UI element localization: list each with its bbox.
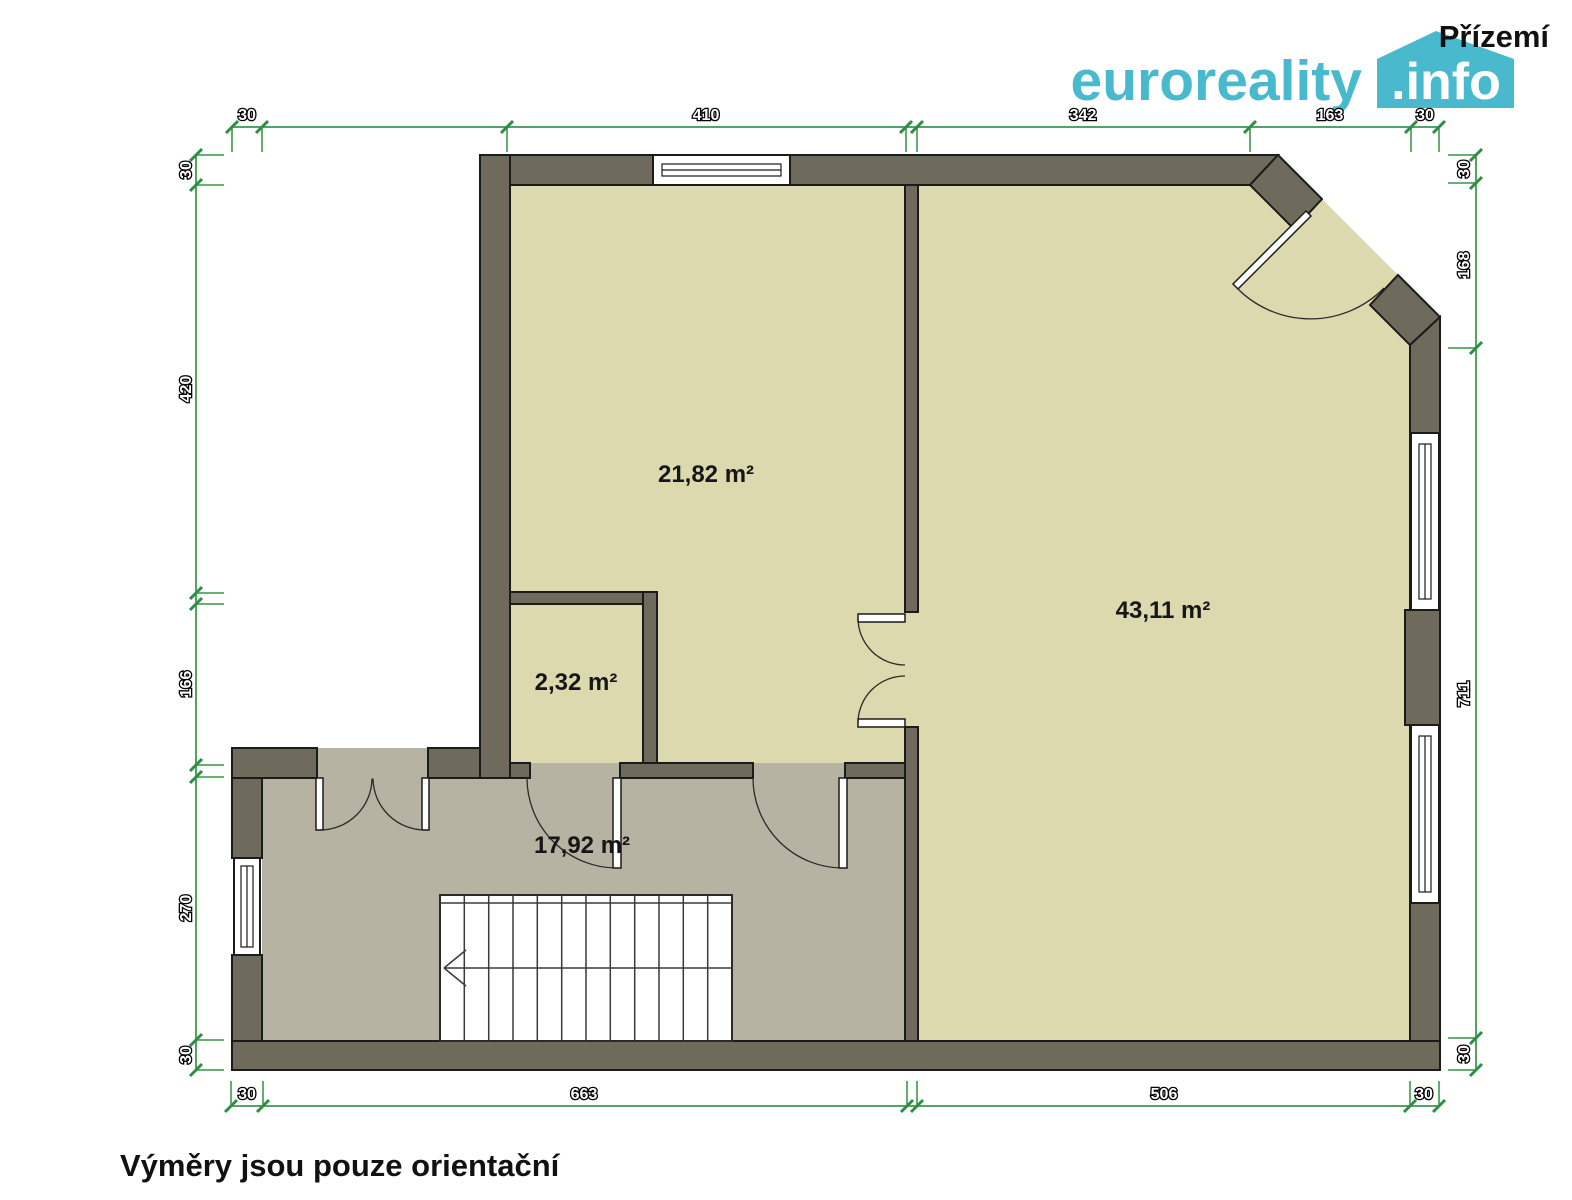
dimension-label: 30 bbox=[1456, 160, 1473, 178]
dimension-label: 30 bbox=[1456, 1045, 1473, 1063]
dimension-label: 30 bbox=[178, 1046, 195, 1064]
dimension-label: 30 bbox=[1416, 107, 1434, 124]
dimension-label: 168 bbox=[1456, 252, 1473, 279]
logo-wordmark: euroreality bbox=[1071, 49, 1363, 113]
dimension-label: 410 bbox=[693, 107, 720, 124]
wall-divider-lower bbox=[905, 727, 918, 1041]
floor-plan-canvas: Přízemí euroreality .info bbox=[0, 0, 1572, 1200]
room-area-label-closet: 2,32 m² bbox=[535, 669, 618, 696]
dimension-label: 342 bbox=[1070, 107, 1097, 124]
floor-plan-page: Přízemí euroreality .info bbox=[0, 0, 1572, 1200]
floor-hall-door-gap bbox=[753, 763, 845, 778]
window-right-wall-upper bbox=[1411, 433, 1439, 610]
wall-hall-stub-2 bbox=[620, 763, 753, 778]
window-top-wall bbox=[653, 155, 790, 185]
disclaimer-note: Výměry jsou pouze orientační bbox=[120, 1148, 561, 1183]
window-left-wall bbox=[234, 858, 260, 955]
wall-bottom bbox=[232, 1041, 1440, 1070]
window-right-wall-lower bbox=[1411, 725, 1439, 903]
floor-title: Přízemí bbox=[1439, 19, 1551, 54]
wall-upper-left bbox=[480, 155, 510, 778]
floor-closet-door-gap bbox=[530, 763, 620, 778]
dimension-chain-left: 30 420 166 270 30 bbox=[178, 149, 224, 1076]
dimension-label: 30 bbox=[238, 107, 256, 124]
room-area-label-hallway: 17,92 m² bbox=[534, 832, 630, 859]
dimension-label: 663 bbox=[571, 1086, 598, 1103]
room-area-label-main: 43,11 m² bbox=[1116, 597, 1211, 624]
dimension-label: 506 bbox=[1151, 1086, 1178, 1103]
wall-divider-upper bbox=[905, 185, 918, 612]
wall-right-pier bbox=[1405, 610, 1440, 725]
dimension-chain-top: 30 410 342 163 30 bbox=[226, 107, 1445, 152]
wall-top-right bbox=[790, 155, 1278, 185]
dimension-label: 30 bbox=[1415, 1086, 1433, 1103]
dimension-label: 420 bbox=[178, 376, 195, 403]
dimension-label: 711 bbox=[1456, 681, 1473, 707]
dimension-label: 30 bbox=[178, 161, 195, 179]
floors bbox=[262, 185, 1410, 1041]
logo-badge-text: .info bbox=[1391, 53, 1501, 111]
wall-closet-right bbox=[643, 592, 657, 763]
dimension-label: 30 bbox=[238, 1086, 256, 1103]
floor-entrance-gap bbox=[317, 748, 428, 778]
dimension-chain-right: 30 168 711 30 bbox=[1448, 149, 1482, 1076]
dimension-label: 166 bbox=[178, 671, 195, 698]
wall-closet-top bbox=[510, 592, 657, 604]
dimension-label: 163 bbox=[1317, 107, 1344, 124]
wall-hall-stub-1 bbox=[510, 763, 530, 778]
dimension-label: 270 bbox=[178, 895, 195, 922]
dimension-chain-bottom: 30 663 506 30 bbox=[225, 1081, 1445, 1112]
staircase bbox=[440, 895, 732, 1041]
wall-hall-top-left bbox=[232, 748, 317, 778]
wall-left-lower-bottom bbox=[232, 955, 262, 1041]
wall-hall-stub-3 bbox=[845, 763, 905, 778]
floor-swing-door-gap bbox=[905, 612, 918, 727]
room-area-label-upper-left: 21,82 m² bbox=[658, 461, 754, 488]
